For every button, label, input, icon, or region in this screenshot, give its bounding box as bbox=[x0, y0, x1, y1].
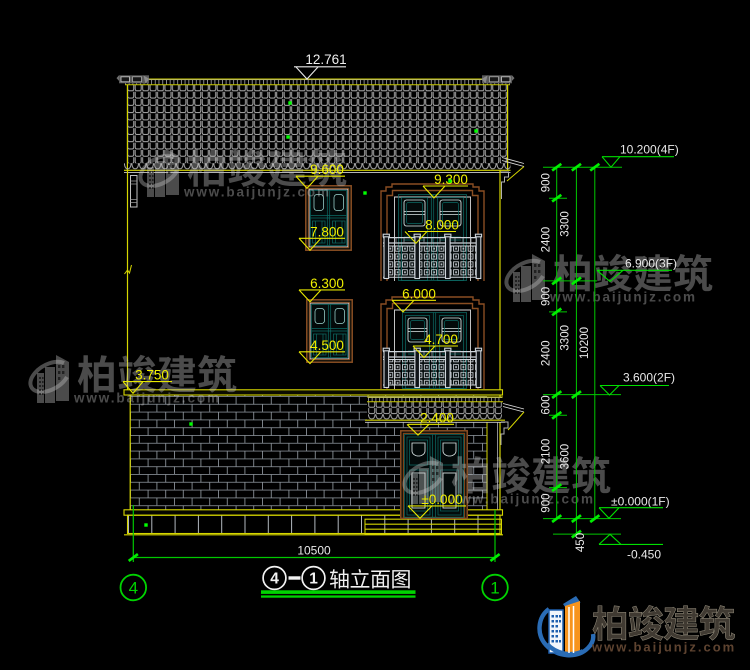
svg-text:2400: 2400 bbox=[541, 227, 553, 253]
svg-text:2100: 2100 bbox=[541, 439, 553, 465]
svg-text:900: 900 bbox=[541, 287, 553, 306]
svg-text:600: 600 bbox=[541, 395, 553, 414]
svg-text:10500: 10500 bbox=[297, 544, 331, 558]
svg-text:1: 1 bbox=[490, 579, 499, 598]
svg-text:4: 4 bbox=[270, 571, 279, 588]
svg-text:3300: 3300 bbox=[560, 325, 572, 351]
svg-text:4.500: 4.500 bbox=[310, 338, 344, 353]
svg-text:9.600: 9.600 bbox=[310, 162, 344, 177]
svg-text:2400: 2400 bbox=[541, 341, 553, 367]
svg-text:6.300: 6.300 bbox=[310, 276, 344, 291]
svg-text:900: 900 bbox=[541, 173, 553, 192]
svg-text:3.750: 3.750 bbox=[135, 368, 169, 383]
svg-text:3600: 3600 bbox=[560, 444, 572, 470]
svg-text:8.000: 8.000 bbox=[425, 218, 459, 233]
svg-text:3300: 3300 bbox=[560, 211, 572, 237]
svg-text:900: 900 bbox=[541, 494, 553, 513]
svg-text:-0.450: -0.450 bbox=[627, 548, 661, 562]
svg-text:450: 450 bbox=[575, 533, 587, 552]
svg-text:±0.000: ±0.000 bbox=[421, 492, 462, 507]
svg-text:www.baijunjz.com: www.baijunjz.com bbox=[591, 640, 736, 655]
svg-text:6.900(3F): 6.900(3F) bbox=[625, 257, 677, 271]
svg-text:2.400: 2.400 bbox=[420, 410, 454, 425]
svg-text:12.761: 12.761 bbox=[305, 52, 346, 67]
svg-text:7.800: 7.800 bbox=[310, 225, 344, 240]
svg-text:4: 4 bbox=[129, 579, 138, 598]
svg-text:1: 1 bbox=[309, 571, 318, 588]
svg-text:10.200(4F): 10.200(4F) bbox=[620, 143, 679, 157]
svg-text:3.600(2F): 3.600(2F) bbox=[623, 371, 675, 385]
svg-text:10200: 10200 bbox=[579, 327, 591, 359]
svg-text:4.700: 4.700 bbox=[424, 332, 458, 347]
svg-text:±0.000(1F): ±0.000(1F) bbox=[611, 495, 670, 509]
svg-text:6.000: 6.000 bbox=[402, 286, 436, 301]
